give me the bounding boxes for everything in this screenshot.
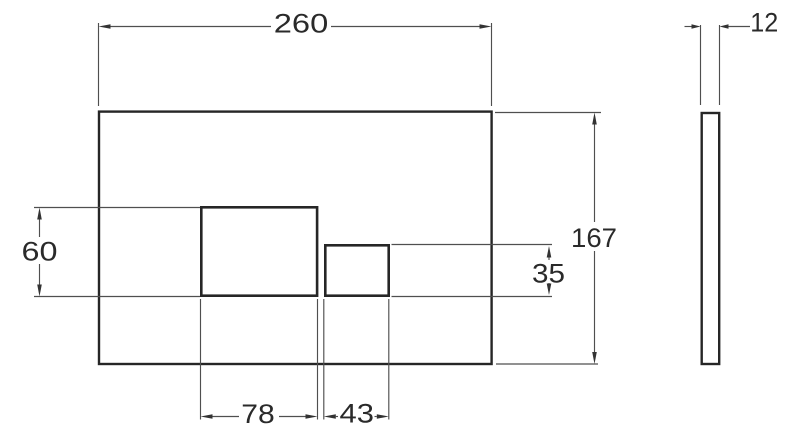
svg-text:35: 35 [532,259,565,289]
svg-text:260: 260 [274,9,329,39]
svg-text:78: 78 [241,399,275,429]
svg-text:12: 12 [750,7,778,37]
svg-text:43: 43 [340,398,375,428]
svg-text:60: 60 [22,237,58,267]
svg-text:167: 167 [571,223,617,253]
